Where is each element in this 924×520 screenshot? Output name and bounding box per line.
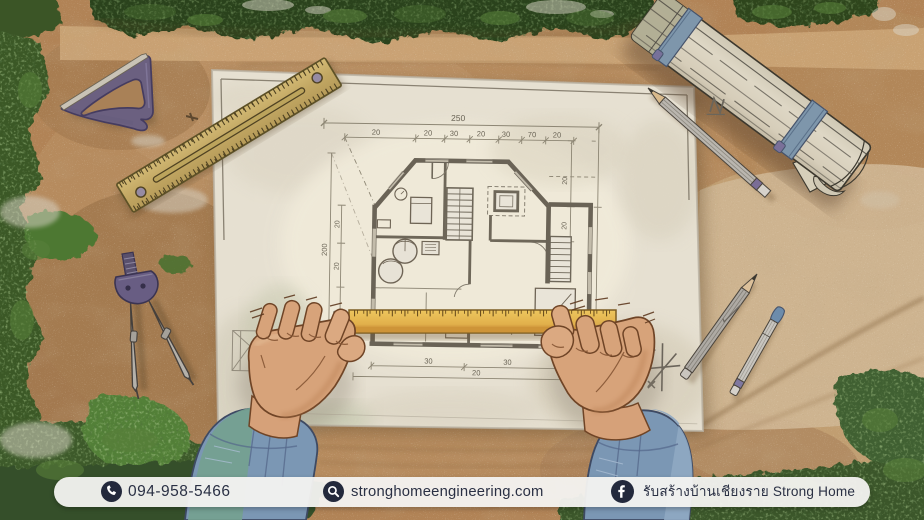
svg-text:20: 20 [472,368,480,377]
svg-text:20: 20 [334,220,341,228]
svg-text:20: 20 [424,128,432,137]
svg-text:20: 20 [561,222,568,230]
svg-text:20: 20 [477,129,485,138]
svg-text:30: 30 [502,130,510,139]
svg-text:30: 30 [503,358,511,367]
svg-text:30: 30 [450,129,458,138]
svg-text:70: 70 [528,130,536,139]
svg-text:30: 30 [424,356,432,365]
svg-text:20: 20 [562,177,569,185]
svg-text:20: 20 [334,262,341,270]
svg-text:20: 20 [553,130,561,139]
svg-text:200: 200 [320,243,329,256]
svg-text:250: 250 [451,113,466,123]
svg-text:20: 20 [372,128,380,137]
